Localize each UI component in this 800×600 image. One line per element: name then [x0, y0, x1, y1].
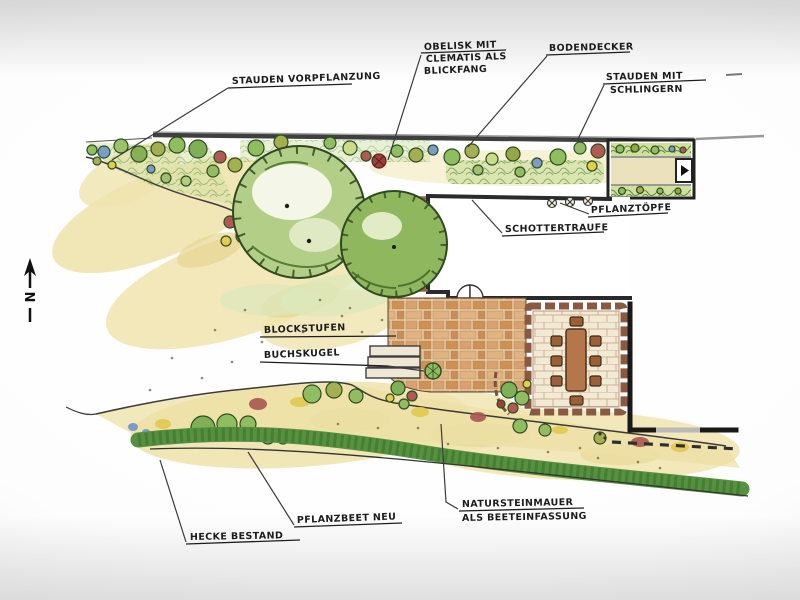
obelisk-clematis-mark	[372, 154, 386, 168]
garden-plan-page: N STAUDEN VORPFLANZUNG OBELISK MIT CLEMA…	[0, 0, 800, 600]
entry-arrow-icon	[676, 159, 692, 182]
svg-text:BLICKFANG: BLICKFANG	[424, 64, 488, 77]
boundary-line-right	[696, 136, 764, 139]
svg-text:CLEMATIS ALS: CLEMATIS ALS	[426, 51, 507, 65]
garden-plan-drawing: N STAUDEN VORPFLANZUNG OBELISK MIT CLEMA…	[0, 0, 800, 600]
second-tree	[341, 191, 447, 297]
north-arrow: N	[21, 258, 36, 322]
svg-text:BODENDECKER: BODENDECKER	[549, 42, 634, 54]
svg-text:ALS BEETEINFASSUNG: ALS BEETEINFASSUNG	[462, 511, 587, 524]
svg-text:SCHLINGERN: SCHLINGERN	[610, 84, 683, 96]
block-steps	[366, 346, 420, 378]
north-label: N	[21, 292, 36, 303]
svg-text:NATURSTEINMAUER: NATURSTEINMAUER	[462, 497, 574, 510]
svg-text:SCHOTTERTRAUFE: SCHOTTERTRAUFE	[505, 222, 609, 235]
label-stauden-schlinger: STAUDEN MIT SCHLINGERN	[578, 71, 742, 139]
dining-table	[566, 329, 586, 391]
svg-text:HECKE BESTAND: HECKE BESTAND	[190, 530, 283, 543]
svg-text:STAUDEN MIT: STAUDEN MIT	[606, 71, 683, 83]
svg-text:STAUDEN VORPFLANZUNG: STAUDEN VORPFLANZUNG	[232, 71, 381, 87]
box-ball	[425, 363, 441, 379]
side-passage	[608, 136, 764, 198]
svg-text:BUCHSKUGEL: BUCHSKUGEL	[264, 347, 340, 361]
